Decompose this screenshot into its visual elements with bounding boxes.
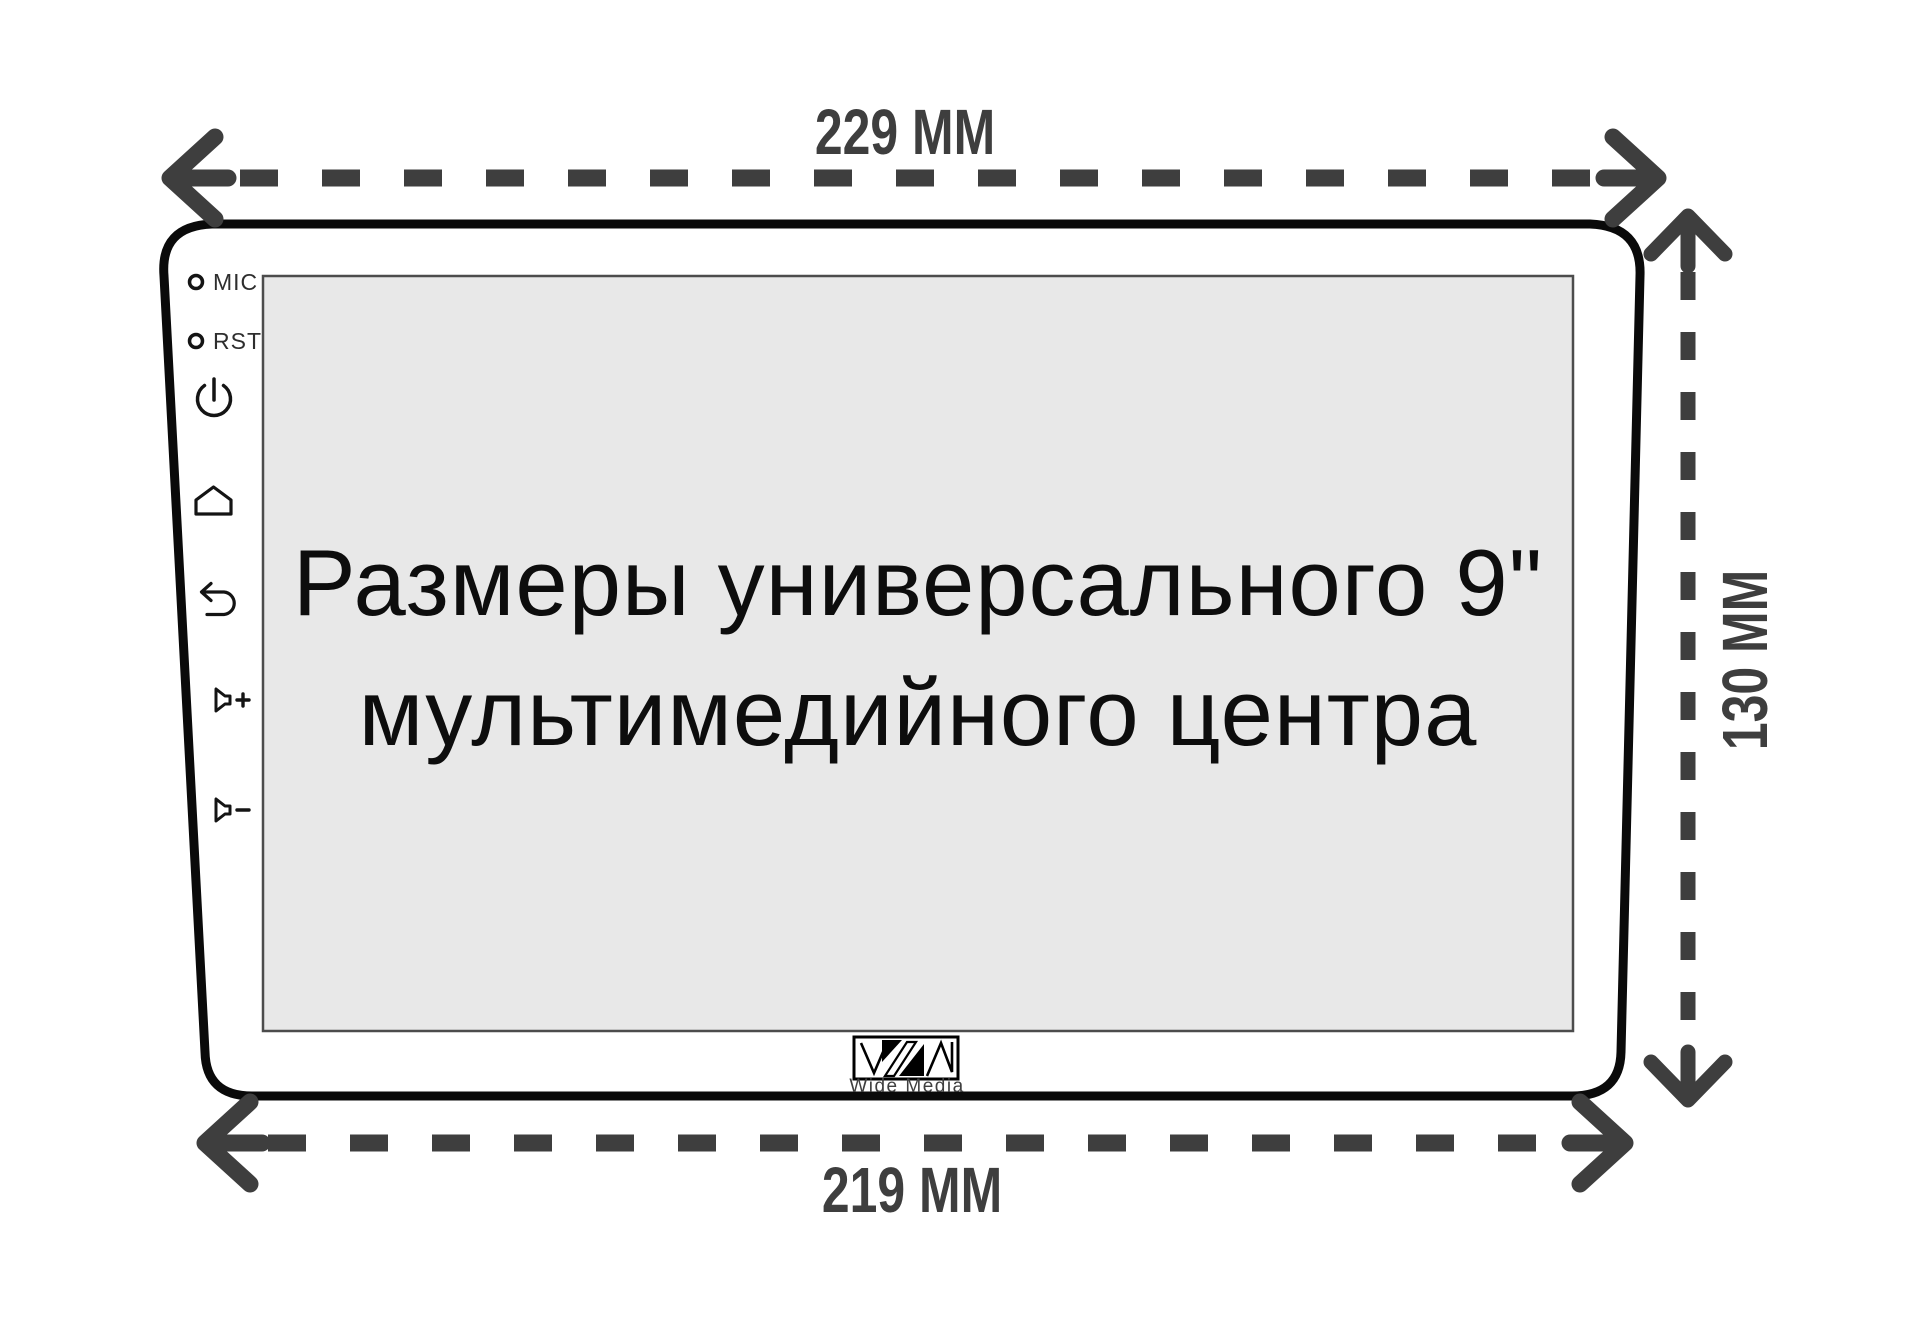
rst-label: RST <box>213 328 262 354</box>
diagram-canvas: 229 ММ 219 ММ 130 ММ MIC RST Размеры уни… <box>0 0 1920 1318</box>
right-height-dimension-label: 130 ММ <box>1713 570 1777 750</box>
bottom-width-dimension-label: 219 ММ <box>822 1158 1002 1222</box>
arrow-right-icon <box>1570 1102 1625 1184</box>
screen-caption-line1: Размеры универсального 9" <box>293 518 1543 648</box>
arrow-left-icon <box>170 137 228 219</box>
arrow-down-icon <box>1651 1052 1725 1100</box>
wide-media-logo-icon <box>854 1037 958 1079</box>
mic-label: MIC <box>213 269 258 295</box>
screen-caption: Размеры универсального 9" мультимедийног… <box>263 270 1573 1025</box>
screen-caption-line2: мультимедийного центра <box>359 648 1478 778</box>
arrow-up-icon <box>1651 216 1725 266</box>
arrow-right-icon <box>1604 137 1658 219</box>
brand-name: Wide Media <box>849 1077 964 1097</box>
top-width-dimension-label: 229 ММ <box>815 100 995 164</box>
arrow-left-icon <box>205 1102 262 1184</box>
